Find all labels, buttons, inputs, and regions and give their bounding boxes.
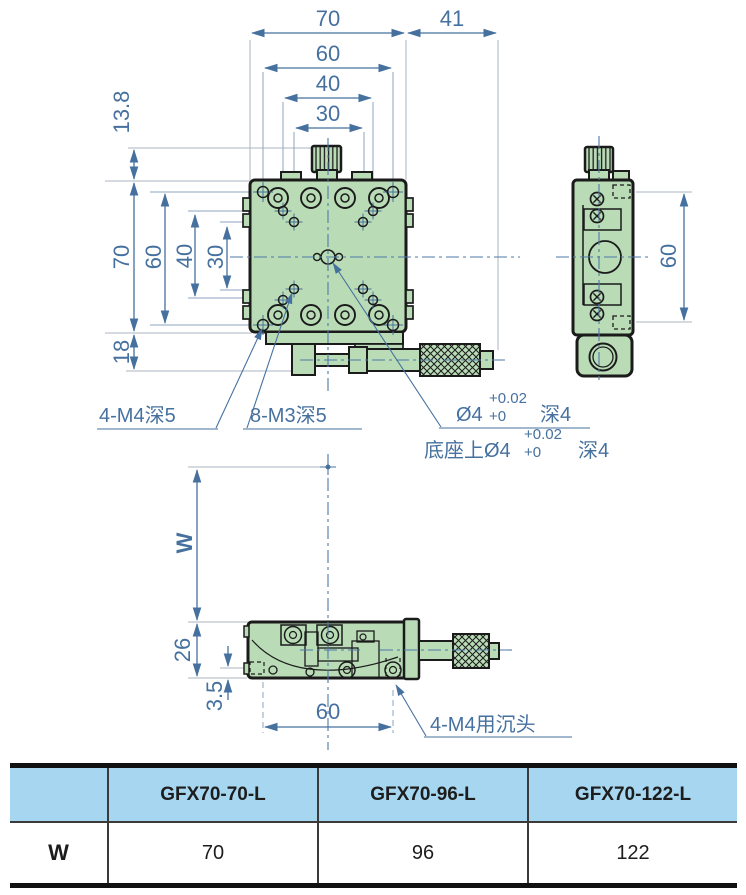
callout-m3-holes: 8-M3深5: [250, 404, 327, 427]
pin-tol-lower: +0: [489, 408, 506, 425]
datasheet-page: 70 41 60 40 30 13.8 70 60 40 30 18 60 W …: [0, 0, 746, 895]
base-pin-tol-upper: +0.02: [524, 426, 562, 443]
adjustment-knob: [312, 146, 341, 172]
callout-m4-holes: 4-M4深5: [99, 404, 176, 427]
dim-top-micrometer: 41: [440, 6, 464, 31]
dim-knob-height: 13.8: [109, 91, 134, 134]
base-pin-prefix: 底座上Ø4: [424, 439, 511, 462]
base-pin-tol-lower: +0: [524, 444, 541, 461]
dim-left-60: 60: [141, 245, 166, 269]
table-value-w-3: 122: [527, 823, 737, 883]
table-header-model-1: GFX70-70-L: [107, 768, 317, 823]
micrometer-top: [266, 332, 493, 376]
dim-bottom-26: 26: [170, 638, 195, 662]
knurled-thimble-bottom: [453, 634, 489, 668]
dim-left-40: 40: [172, 244, 197, 268]
callout-pin-hole: Ø4 +0.02 +0 深4: [456, 390, 571, 426]
dim-left-30: 30: [203, 245, 228, 269]
dim-left-18: 18: [109, 340, 134, 364]
table-header-model-2: GFX70-96-L: [317, 768, 527, 823]
table-row-label-w: W: [10, 823, 107, 883]
dim-top-30: 30: [316, 101, 340, 126]
pin-dia: Ø4: [456, 404, 483, 426]
side-view: [573, 147, 633, 376]
table-value-w-1: 70: [107, 823, 317, 883]
dim-top-40: 40: [316, 71, 340, 96]
dim-bottom-w: W: [172, 532, 197, 553]
table-value-w-2: 96: [317, 823, 527, 883]
top-view: [243, 146, 493, 376]
table-header-model-3: GFX70-122-L: [527, 768, 737, 823]
callout-countersink: 4-M4用沉头: [430, 713, 536, 736]
table-corner-cell: [10, 768, 107, 823]
pin-depth: 深4: [540, 403, 571, 426]
pin-tol-upper: +0.02: [489, 390, 527, 407]
dim-top-width: 70: [316, 6, 340, 31]
bottom-view: [244, 619, 499, 679]
w-reference-point: [320, 459, 336, 475]
dim-top-60: 60: [316, 41, 340, 66]
spec-table: GFX70-70-L GFX70-96-L GFX70-122-L W 70 9…: [10, 763, 737, 888]
technical-drawing: 70 41 60 40 30 13.8 70 60 40 30 18 60 W …: [0, 0, 746, 760]
base-pin-depth: 深4: [578, 439, 609, 462]
dim-bottom-3-5: 3.5: [202, 681, 227, 712]
dim-left-70: 70: [109, 245, 134, 269]
dim-bottom-60: 60: [316, 699, 340, 724]
callout-base-pin-hole: 底座上Ø4 +0.02 +0 深4: [424, 426, 609, 462]
dim-side-60: 60: [656, 244, 681, 268]
